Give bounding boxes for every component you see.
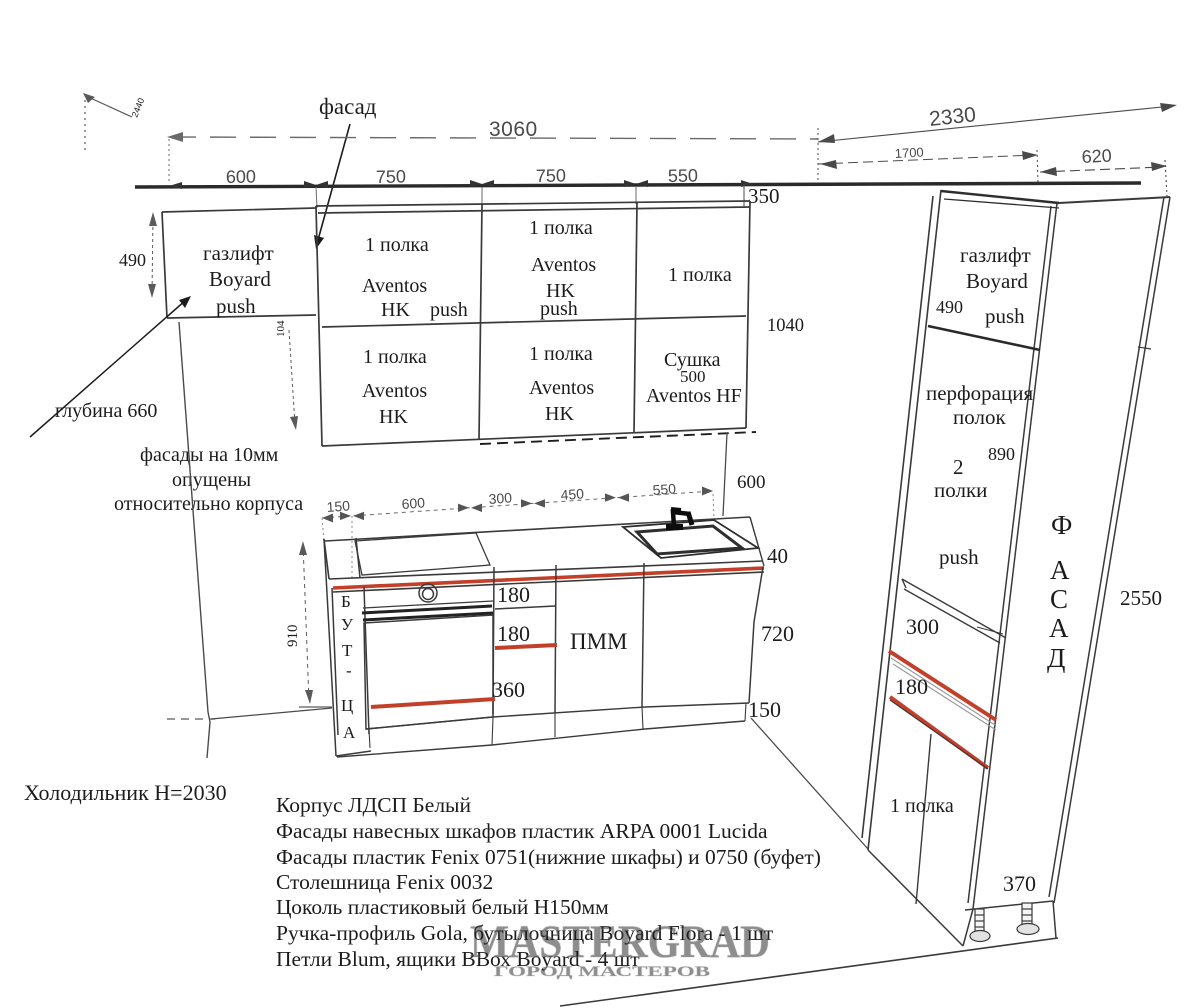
svg-text:Фасады пластик Fenix 0751(нижн: Фасады пластик Fenix 0751(нижние шкафы) … — [276, 845, 821, 869]
svg-text:150: 150 — [326, 497, 351, 515]
svg-text:HK: HK — [545, 403, 574, 425]
svg-text:1 полка: 1 полка — [363, 346, 427, 368]
svg-text:Б: Б — [341, 592, 351, 611]
svg-text:push: push — [430, 299, 468, 321]
svg-text:Фасады навесных шкафов пластик: Фасады навесных шкафов пластик ARPA 0001… — [276, 819, 768, 843]
svg-text:полки: полки — [934, 478, 987, 502]
svg-text:HK: HK — [381, 299, 410, 321]
svg-text:Aventos: Aventos — [362, 380, 427, 402]
svg-text:490: 490 — [119, 250, 146, 270]
svg-text:Д: Д — [1047, 643, 1065, 673]
svg-text:1700: 1700 — [894, 145, 924, 161]
svg-text:550: 550 — [668, 165, 698, 186]
svg-text:600: 600 — [401, 494, 426, 512]
svg-text:MASTERGRAD: MASTERGRAD — [470, 916, 770, 968]
svg-text:Aventos: Aventos — [362, 275, 427, 297]
svg-text:1 полка: 1 полка — [668, 264, 732, 286]
svg-text:450: 450 — [560, 485, 585, 503]
svg-text:600: 600 — [737, 472, 766, 493]
svg-text:А: А — [343, 723, 356, 742]
svg-text:перфорация: перфорация — [926, 381, 1033, 405]
svg-text:А: А — [1049, 613, 1069, 643]
svg-text:фасад: фасад — [319, 94, 377, 119]
svg-text:180: 180 — [497, 621, 530, 646]
svg-text:Aventos HF: Aventos HF — [646, 385, 742, 407]
svg-text:1 полка: 1 полка — [890, 795, 954, 817]
svg-text:push: push — [939, 545, 979, 569]
svg-text:Boyard: Boyard — [209, 267, 271, 291]
svg-text:Ф: Ф — [1051, 510, 1072, 540]
svg-text:104: 104 — [275, 320, 287, 337]
svg-text:глубина 660: глубина 660 — [55, 400, 157, 422]
svg-text:2: 2 — [953, 455, 964, 479]
svg-text:ГОРОД МАСТЕРОВ: ГОРОД МАСТЕРОВ — [494, 964, 710, 980]
svg-text:газлифт: газлифт — [203, 241, 274, 265]
svg-text:push: push — [985, 304, 1025, 328]
svg-text:Холодильник Н=2030: Холодильник Н=2030 — [24, 780, 227, 805]
svg-text:2330: 2330 — [928, 103, 977, 131]
svg-text:490: 490 — [936, 297, 963, 317]
svg-text:Ц: Ц — [341, 696, 353, 715]
svg-text:890: 890 — [988, 444, 1015, 464]
svg-text:150: 150 — [748, 697, 781, 722]
svg-text:2550: 2550 — [1120, 586, 1162, 610]
svg-text:1 полка: 1 полка — [365, 234, 429, 256]
svg-text:750: 750 — [536, 165, 566, 186]
svg-text:ПММ: ПММ — [570, 629, 628, 654]
svg-text:Т: Т — [342, 641, 353, 660]
svg-text:370: 370 — [1003, 871, 1036, 896]
svg-text:фасады на 10мм: фасады на 10мм — [140, 444, 279, 466]
svg-text:У: У — [341, 615, 354, 634]
svg-text:полок: полок — [953, 405, 1006, 429]
svg-text:1 полка: 1 полка — [529, 343, 593, 365]
svg-text:-: - — [346, 661, 352, 680]
svg-text:720: 720 — [761, 621, 794, 646]
svg-text:Aventos: Aventos — [531, 254, 596, 276]
svg-text:HK: HK — [379, 406, 408, 428]
svg-text:push: push — [216, 294, 256, 318]
svg-text:1 полка: 1 полка — [529, 217, 593, 239]
svg-text:опущены: опущены — [172, 469, 251, 491]
svg-text:550: 550 — [652, 480, 677, 498]
svg-text:910: 910 — [285, 625, 301, 648]
svg-text:180: 180 — [895, 674, 928, 699]
svg-text:40: 40 — [767, 544, 788, 568]
svg-text:180: 180 — [497, 582, 530, 607]
svg-text:750: 750 — [376, 166, 406, 187]
svg-text:360: 360 — [492, 677, 525, 702]
svg-text:1040: 1040 — [767, 316, 804, 336]
svg-text:500: 500 — [680, 367, 706, 386]
svg-text:относительно корпуса: относительно корпуса — [114, 493, 303, 515]
svg-text:300: 300 — [906, 614, 939, 639]
svg-text:push: push — [540, 298, 578, 320]
svg-text:350: 350 — [748, 184, 780, 208]
svg-text:Корпус ЛДСП Белый: Корпус ЛДСП Белый — [276, 793, 471, 817]
svg-text:Столешница Fenix 0032: Столешница Fenix 0032 — [276, 870, 493, 894]
svg-text:А: А — [1050, 555, 1070, 585]
svg-text:Boyard: Boyard — [966, 269, 1028, 293]
svg-text:600: 600 — [226, 166, 256, 187]
svg-text:газлифт: газлифт — [960, 243, 1031, 267]
svg-text:620: 620 — [1081, 145, 1112, 167]
svg-text:3060: 3060 — [489, 118, 538, 141]
svg-text:300: 300 — [488, 489, 513, 507]
svg-text:Aventos: Aventos — [529, 377, 594, 399]
svg-text:С: С — [1050, 584, 1068, 614]
